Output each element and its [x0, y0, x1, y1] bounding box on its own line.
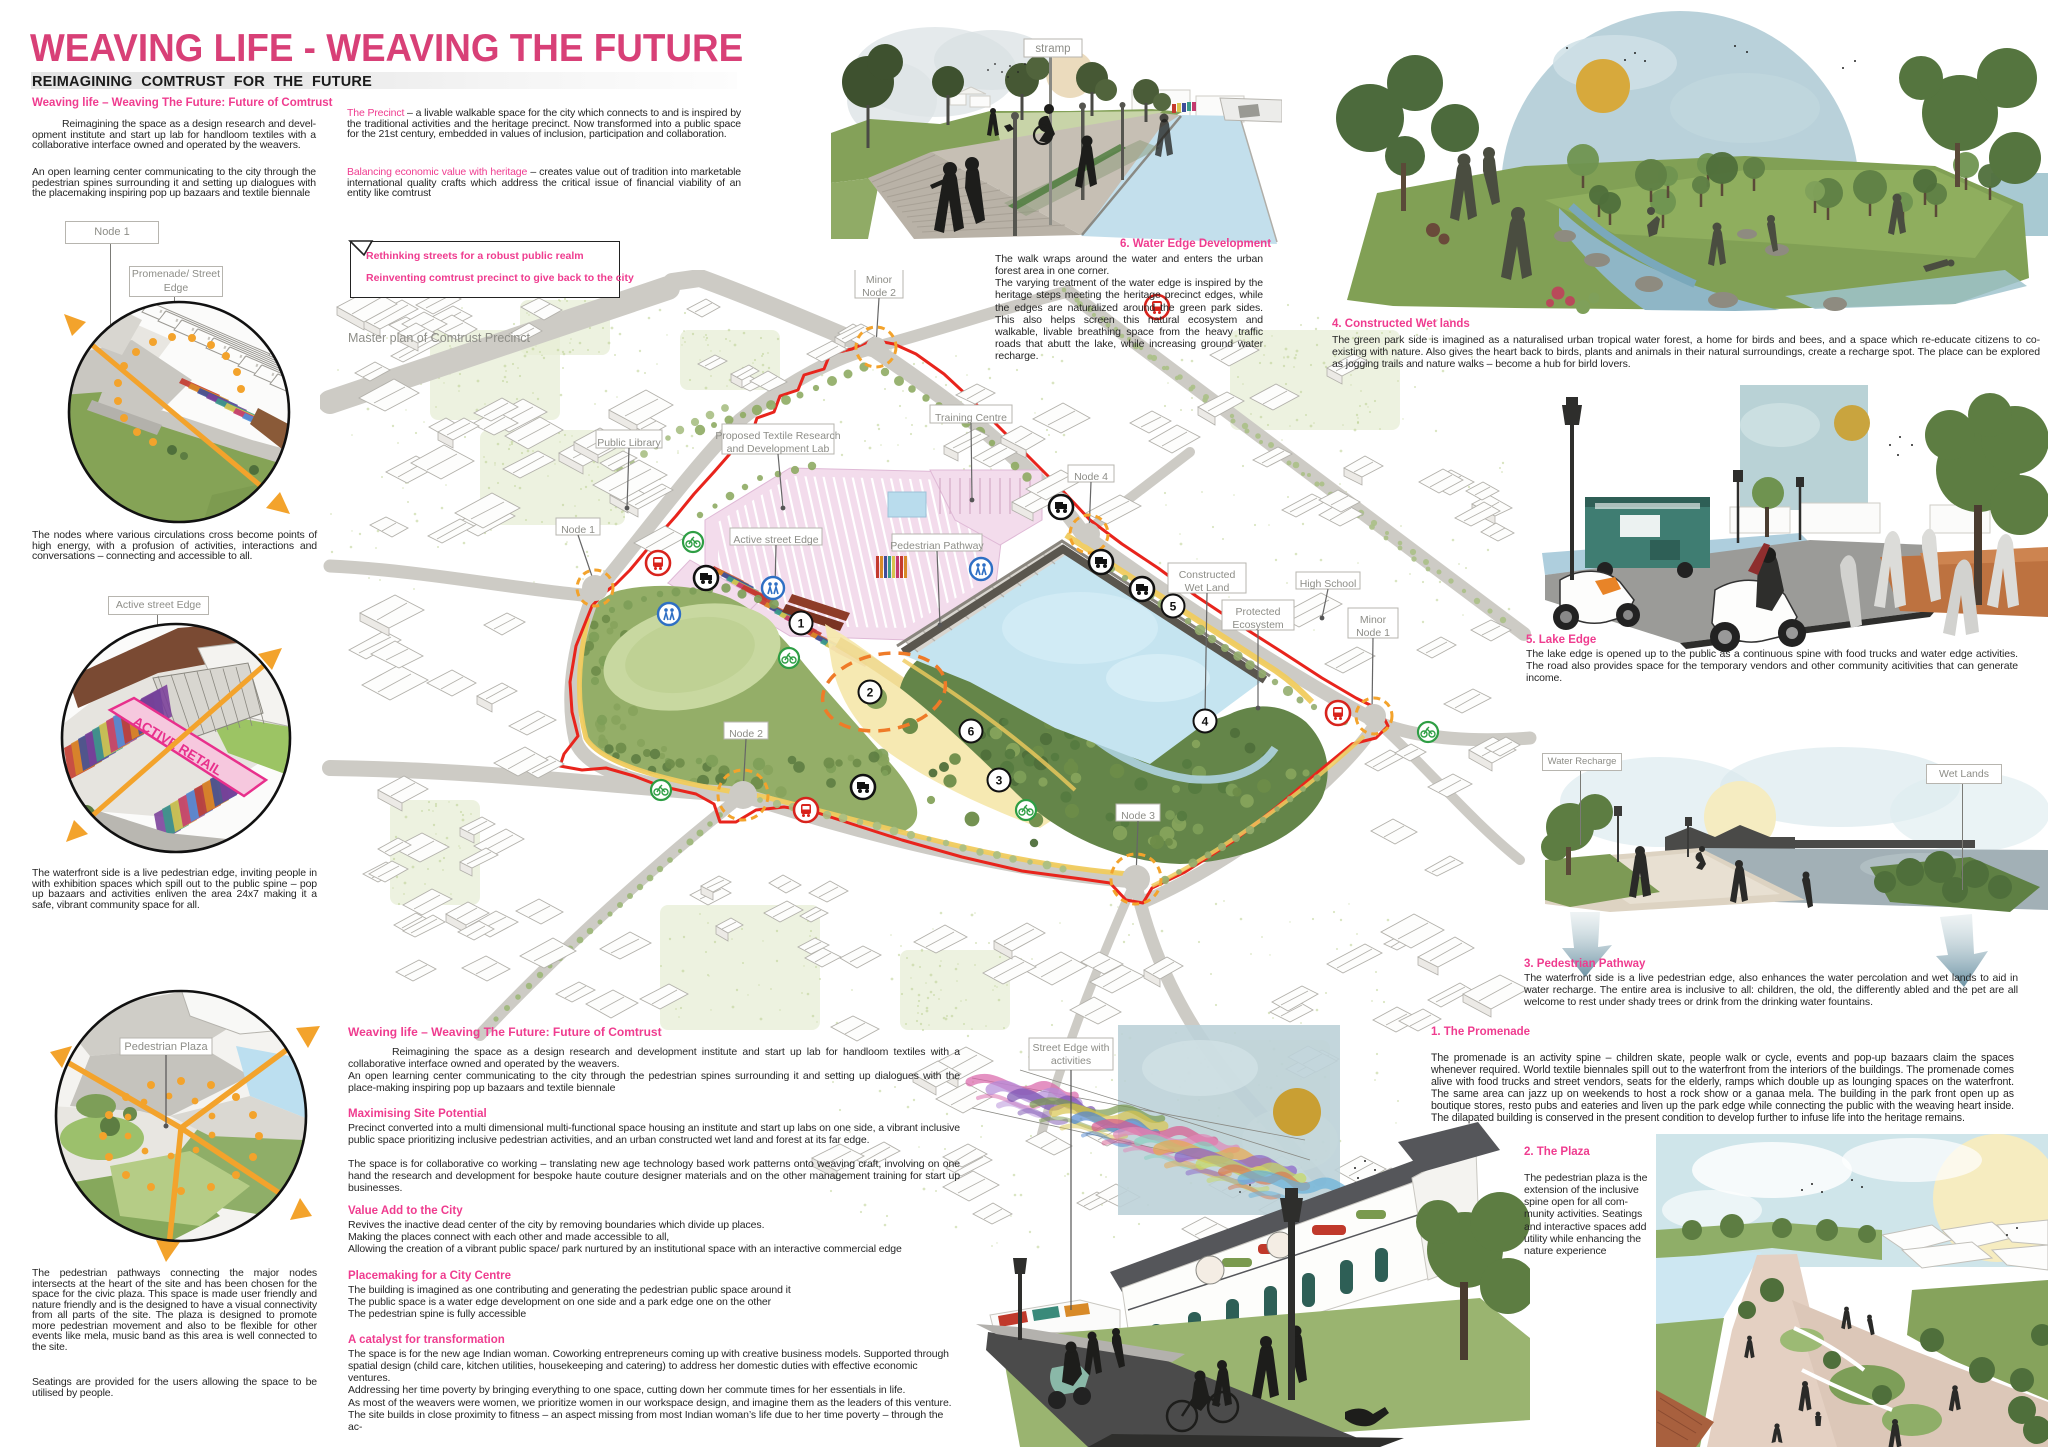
svg-text:stramp: stramp: [1035, 43, 1070, 55]
svg-text:Pedestrian Pathway: Pedestrian Pathway: [890, 540, 984, 552]
svg-text:Constructed: Constructed: [1179, 569, 1236, 581]
svg-text:Node 3: Node 3: [1121, 810, 1155, 822]
svg-text:Ecosystem: Ecosystem: [1232, 619, 1284, 631]
svg-text:4: 4: [1202, 715, 1209, 729]
svg-text:Minor: Minor: [866, 274, 893, 286]
svg-text:3: 3: [996, 774, 1003, 788]
svg-text:Active street Edge: Active street Edge: [733, 534, 818, 546]
svg-text:Node 1: Node 1: [1356, 627, 1390, 639]
svg-text:6: 6: [968, 725, 975, 739]
svg-text:Wet Land: Wet Land: [1185, 582, 1230, 594]
svg-text:Node 2: Node 2: [862, 287, 896, 299]
svg-text:Node 4: Node 4: [1074, 471, 1108, 483]
svg-text:Proposed Textile Research: Proposed Textile Research: [715, 430, 840, 442]
svg-text:5: 5: [1170, 600, 1177, 614]
svg-text:Pedestrian Plaza: Pedestrian Plaza: [124, 1041, 208, 1053]
svg-text:Training Centre: Training Centre: [935, 412, 1007, 424]
svg-text:Node 2: Node 2: [729, 728, 763, 740]
svg-text:Minor: Minor: [1360, 614, 1387, 626]
svg-text:Protected: Protected: [1236, 606, 1281, 618]
svg-text:activities: activities: [1051, 1055, 1091, 1067]
svg-text:Public Library: Public Library: [597, 437, 661, 449]
svg-text:1: 1: [798, 617, 805, 631]
svg-text:Node 1: Node 1: [561, 524, 595, 536]
svg-text:2: 2: [867, 686, 874, 700]
svg-text:and Development Lab: and Development Lab: [727, 443, 830, 455]
svg-text:Street Edge with: Street Edge with: [1032, 1042, 1109, 1054]
svg-text:High School: High School: [1300, 578, 1357, 590]
